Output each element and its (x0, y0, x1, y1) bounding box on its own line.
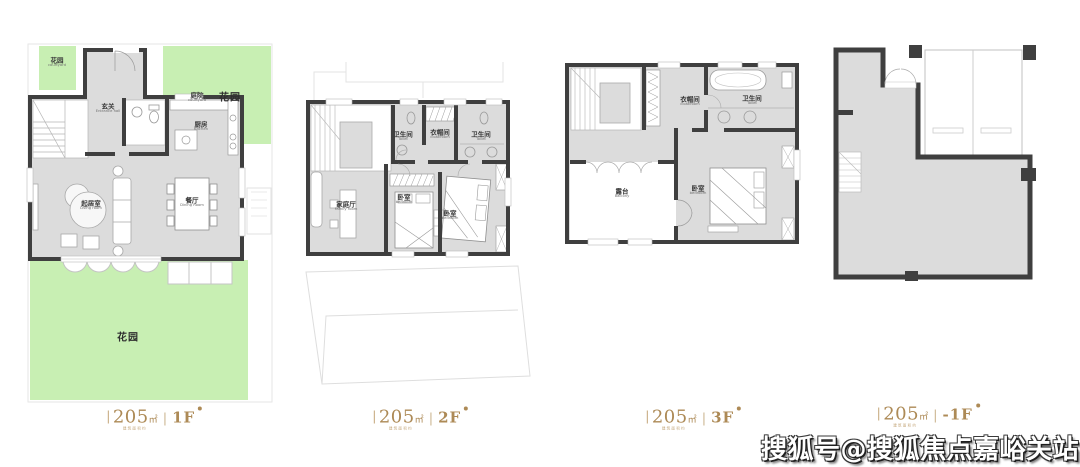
label-bracket (108, 411, 111, 424)
floor-label-1f: 205㎡ 建筑面积约 | 1F (108, 407, 202, 428)
bedroom-right-en: bedroom (442, 217, 459, 221)
garden-right-zh: 花园 (219, 92, 241, 104)
balcony-en: balcony (615, 195, 630, 199)
floorplan-3f-drawing (558, 50, 808, 300)
cloakroom-closet (426, 107, 456, 121)
room-label-kitchen: 厨房 Kitchen (190, 121, 213, 134)
room-label-family-room: 家庭厅 Family room (328, 201, 365, 214)
room-label-toilet-right: 卫生间 Toilet (471, 131, 491, 144)
room-label-cloakroom-2f: 衣帽间 cloakroom (424, 129, 455, 142)
staircase (33, 100, 88, 158)
area-unit: ㎡ (688, 416, 697, 426)
floor-label-b1f: 205㎡ 建筑面积约 | -1F (878, 404, 980, 425)
floorplan-2f: 卫生间 Toilet 衣帽间 cloakroom 卫生间 Toilet 家庭厅 … (298, 60, 543, 390)
dining-en: Dining Room (180, 204, 204, 208)
room-label-dining: 餐厅 Dining Room (173, 197, 211, 210)
bedroom-mid-en: bedroom (396, 201, 413, 205)
label-bracket (878, 408, 881, 421)
floor-number: 3F (711, 409, 734, 427)
bathroom-1f (125, 100, 165, 145)
toilet-3f-en: Toilet (746, 102, 758, 106)
floorplan-1f: 花园 courtyard 庭院 courtyard 花园 玄关 Entrance… (25, 38, 275, 408)
label-divider: | (429, 412, 433, 427)
room-label-entrance: 玄关 Entrance hall (88, 103, 128, 116)
floor-number: 2F (438, 409, 461, 427)
area-note: 建筑面积约 (894, 422, 918, 427)
cloakroom-2f-en: cloakroom (430, 136, 449, 140)
garden-right-note-en: courtyard (188, 99, 206, 103)
area-note: 建筑面积约 (662, 425, 686, 430)
compass-dot-icon (976, 403, 980, 407)
room-label-bedroom-mid: 卧室 bedroom (391, 194, 418, 207)
cloakroom-closet (646, 70, 660, 126)
label-divider: | (933, 409, 937, 424)
compass-dot-icon (198, 406, 202, 410)
compass-dot-icon (737, 406, 741, 410)
room-label-garden-bottom: 花园 (117, 332, 139, 344)
floor-label-3f: 205㎡ 建筑面积约 | 3F (647, 407, 741, 428)
room-label-cloakroom-3f: 衣帽间 cloakroom (674, 96, 705, 109)
floor-number: -1F (942, 406, 972, 424)
entrance-en: Entrance hall (96, 110, 121, 114)
room-label-toilet-3f: 卫生间 Toilet (742, 95, 762, 108)
room-label-bedroom-right: 卧室 bedroom (437, 210, 464, 223)
garden-small-en: courtyard (48, 64, 66, 68)
staircase (571, 68, 641, 130)
watermark-text: 搜狐号@搜狐焦点嘉峪关站 (761, 429, 1079, 466)
doors (885, 69, 916, 88)
toilet-right-en: Toilet (475, 138, 487, 142)
area-unit: ㎡ (415, 416, 424, 426)
floorplan-b1f (833, 40, 1043, 285)
garden-bottom-zh: 花园 (117, 332, 139, 344)
paved-terrace (168, 262, 232, 284)
cloakroom-3f-en: cloakroom (680, 103, 699, 107)
bedroom-3f-en: bedroom (690, 192, 707, 196)
area-unit: ㎡ (919, 413, 928, 423)
room-label-bedroom-3f: 卧室 bedroom (685, 185, 712, 198)
area-unit: ㎡ (149, 416, 158, 426)
label-divider: | (163, 412, 167, 427)
area-value-wrap: 205㎡ 建筑面积约 (379, 407, 424, 428)
label-bracket (374, 411, 377, 424)
floorplan-2f-drawing (298, 60, 543, 390)
floorplan-page: 花园 courtyard 庭院 courtyard 花园 玄关 Entrance… (0, 0, 1080, 467)
living-en: Living room (80, 207, 102, 211)
area-value-wrap: 205㎡ 建筑面积约 (883, 404, 928, 425)
room-label-garden-right-note: 庭院 courtyard (183, 92, 212, 105)
family-room-en: Family room (335, 208, 358, 212)
label-bracket (647, 411, 650, 424)
area-value-wrap: 205㎡ 建筑面积约 (652, 407, 697, 428)
floor-label-2f: 205㎡ 建筑面积约 | 2F (374, 407, 468, 428)
room-label-toilet-left: 卫生间 Toilet (393, 131, 413, 144)
staircase (839, 152, 861, 192)
garage (925, 50, 1022, 157)
staircase (311, 105, 391, 171)
terrace-outline (306, 266, 530, 384)
area-note: 建筑面积约 (123, 425, 147, 430)
area-note: 建筑面积约 (389, 425, 413, 430)
room-label-balcony: 露台 balcony (610, 188, 633, 201)
compass-dot-icon (464, 406, 468, 410)
roof-outline (314, 62, 503, 100)
kitchen-en: Kitchen (194, 128, 208, 132)
toilet-left-en: Toilet (397, 138, 409, 142)
room-label-garden-small: 花园 courtyard (43, 57, 72, 70)
area-value-wrap: 205㎡ 建筑面积约 (113, 407, 158, 428)
floor-number: 1F (172, 409, 195, 427)
room-label-garden-right: 花园 (219, 92, 241, 104)
floorplan-3f: 衣帽间 cloakroom 卫生间 Toilet 露台 balcony 卧室 b… (558, 50, 808, 300)
floorplan-b1f-drawing (833, 40, 1043, 285)
room-label-living: 起居室 Living room (73, 200, 108, 213)
label-divider: | (702, 412, 706, 427)
